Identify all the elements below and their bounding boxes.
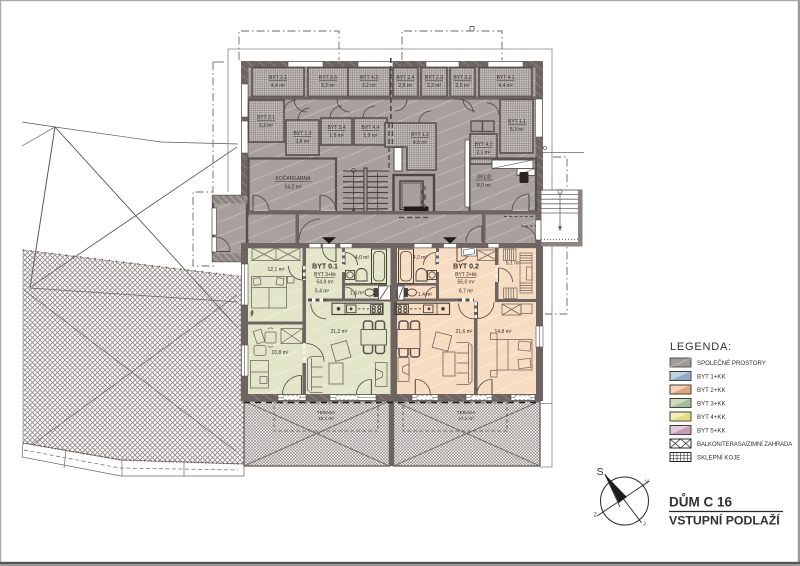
svg-text:KOČÁRKÁRNA: KOČÁRKÁRNA [275,175,311,182]
svg-text:5,3 m²: 5,3 m² [510,127,525,133]
svg-text:BYT 2.1: BYT 2.1 [257,115,275,121]
svg-text:21,6 m²: 21,6 m² [456,329,473,335]
svg-text:10,8 m²: 10,8 m² [272,350,289,356]
svg-text:J: J [643,522,646,528]
svg-text:4,6 m²: 4,6 m² [413,140,428,146]
svg-text:BYT 3.5: BYT 3.5 [319,75,337,81]
svg-text:BYT 2.3: BYT 2.3 [425,75,443,81]
svg-text:2,1 m²: 2,1 m² [476,150,491,156]
svg-text:BYT 3.3: BYT 3.3 [454,75,472,81]
svg-text:3,8 m²: 3,8 m² [295,139,310,145]
svg-text:4,0 m²: 4,0 m² [413,255,428,261]
svg-text:8,0 m²: 8,0 m² [477,183,492,189]
svg-text:2,2 m²: 2,2 m² [427,83,442,89]
svg-text:1,4 m²: 1,4 m² [350,291,365,297]
svg-text:3,2 m²: 3,2 m² [259,123,274,129]
svg-text:BYT 4.4: BYT 4.4 [362,125,380,131]
svg-text:21,2 m²: 21,2 m² [331,329,348,335]
svg-text:8,7 m²: 8,7 m² [459,289,474,295]
svg-text:BYT 4.1: BYT 4.1 [497,75,515,81]
svg-text:17,1 m²: 17,1 m² [458,416,474,421]
svg-text:5,4 m²: 5,4 m² [315,289,330,295]
svg-text:BALKON/TERASA/ZIMNÍ ZAHRADA: BALKON/TERASA/ZIMNÍ ZAHRADA [697,441,792,448]
svg-text:ÚKLID: ÚKLID [477,174,492,181]
svg-text:54,9 m²: 54,9 m² [317,280,334,286]
svg-text:55,0 m²: 55,0 m² [458,280,475,286]
svg-text:BYT 4.2: BYT 4.2 [475,142,493,148]
svg-text:4,4 m²: 4,4 m² [271,83,286,89]
svg-text:BYT 3.4: BYT 3.4 [328,125,346,131]
svg-text:BYT 2+KK: BYT 2+KK [697,387,726,394]
svg-text:VSTUPNÍ PODLAŽÍ: VSTUPNÍ PODLAŽÍ [669,513,780,528]
svg-text:BYT 1+KK: BYT 1+KK [697,374,726,381]
svg-text:SKLEPNÍ KOJE: SKLEPNÍ KOJE [697,455,740,462]
svg-text:2,2 m²: 2,2 m² [455,83,470,89]
svg-text:BYT 2.4: BYT 2.4 [397,75,415,81]
svg-text:1,9 m²: 1,9 m² [329,133,344,139]
svg-text:4,0 m²: 4,0 m² [355,255,370,261]
svg-text:V: V [645,480,649,486]
svg-text:BYT 0.1: BYT 0.1 [312,264,338,271]
svg-text:1,4 m²: 1,4 m² [418,292,433,298]
svg-text:TERASA: TERASA [317,410,336,415]
svg-text:14,2 m²: 14,2 m² [285,185,302,191]
svg-text:BYT 3.1: BYT 3.1 [269,75,287,81]
svg-text:3,2 m²: 3,2 m² [321,83,336,89]
svg-text:BYT 4.3: BYT 4.3 [360,75,378,81]
svg-text:5,1 m²: 5,1 m² [506,261,521,267]
svg-text:2,8 m²: 2,8 m² [398,83,413,89]
svg-text:BYT 1.1: BYT 1.1 [508,119,526,125]
svg-text:BYT 1.2: BYT 1.2 [411,132,429,138]
svg-text:12,1 m²: 12,1 m² [268,267,285,273]
svg-text:S: S [597,466,604,478]
svg-text:BYT 4+KK: BYT 4+KK [697,414,726,421]
svg-text:19,1 m²: 19,1 m² [318,416,334,421]
svg-text:BYT 3+KK: BYT 3+KK [697,401,726,408]
svg-text:1,9 m²: 1,9 m² [363,133,378,139]
svg-text:BYT 0.2: BYT 0.2 [453,264,479,271]
svg-text:TERASA: TERASA [457,410,476,415]
svg-text:4,4 m²: 4,4 m² [498,83,513,89]
svg-text:BYT 1.3: BYT 1.3 [294,131,312,137]
svg-text:BYT 5+KK: BYT 5+KK [697,428,726,435]
svg-text:LEGENDA:: LEGENDA: [670,341,732,353]
svg-text:DŮM C 16: DŮM C 16 [669,494,733,510]
svg-text:SPOLEČNÉ PROSTORY: SPOLEČNÉ PROSTORY [697,360,766,367]
svg-text:3,2 m²: 3,2 m² [362,83,377,89]
